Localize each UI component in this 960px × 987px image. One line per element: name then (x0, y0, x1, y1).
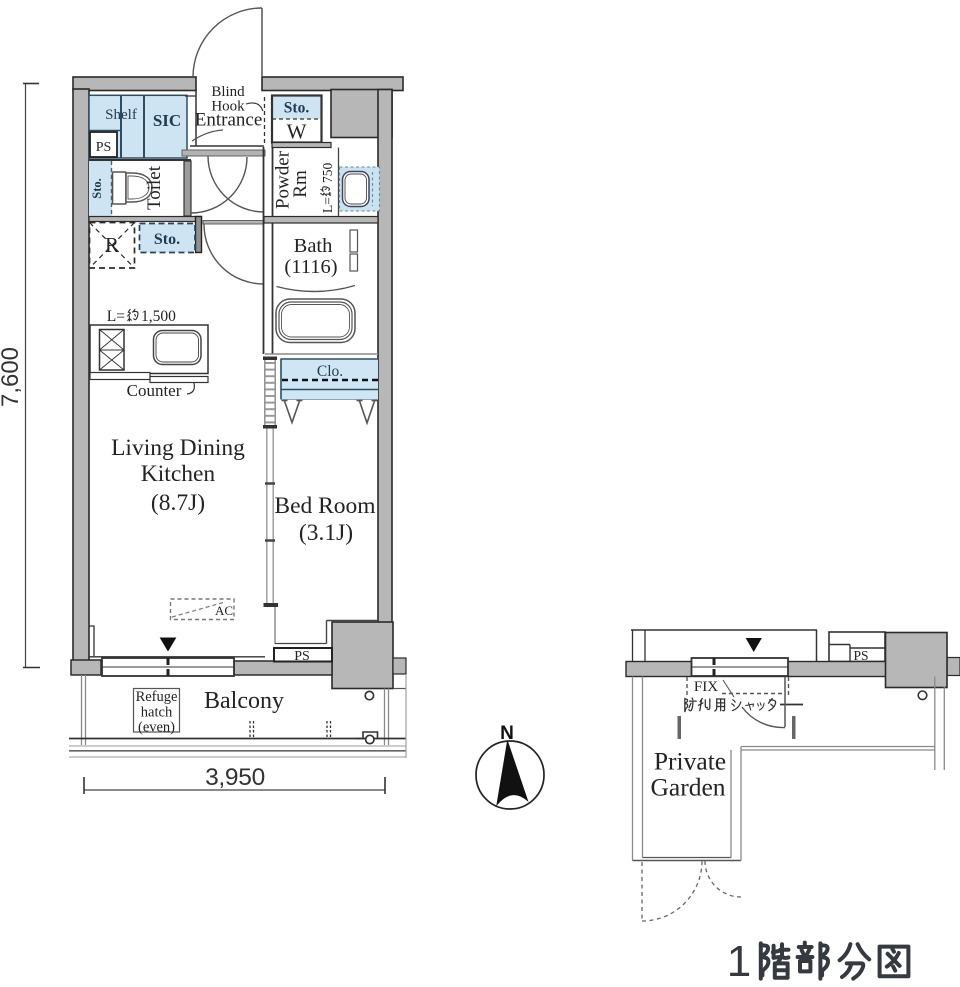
svg-text:Sto.: Sto. (90, 178, 104, 199)
svg-text:3,950: 3,950 (205, 764, 265, 791)
svg-text:750: 750 (320, 163, 335, 184)
svg-text:(1116): (1116) (284, 256, 337, 278)
svg-text:PS: PS (294, 649, 310, 664)
svg-text:Sto.: Sto. (154, 231, 180, 248)
svg-text:1,500: 1,500 (141, 308, 176, 325)
svg-text:W: W (287, 120, 307, 144)
svg-text:Bath: Bath (294, 235, 333, 257)
svg-text:Garden: Garden (650, 773, 725, 802)
svg-text:FIX: FIX (694, 679, 718, 695)
svg-text:Shelf: Shelf (105, 107, 137, 123)
svg-text:PS: PS (853, 648, 868, 663)
svg-text:Sto.: Sto. (284, 100, 310, 117)
svg-text:Refuge: Refuge (136, 689, 178, 705)
svg-text:Balcony: Balcony (204, 688, 284, 714)
svg-text:Bed Room: Bed Room (274, 493, 375, 519)
svg-text:hatch: hatch (141, 705, 173, 721)
svg-text:SIC: SIC (153, 111, 181, 130)
svg-text:7,600: 7,600 (0, 347, 24, 407)
svg-text:Kitchen: Kitchen (141, 461, 216, 487)
svg-text:L=: L= (107, 308, 125, 325)
svg-text:L=: L= (320, 197, 335, 213)
svg-text:Private: Private (654, 747, 726, 776)
svg-text:(even): (even) (138, 720, 175, 736)
svg-text:AC: AC (215, 603, 233, 618)
svg-text:Counter: Counter (127, 381, 182, 400)
svg-text:R: R (105, 233, 119, 257)
svg-text:N: N (500, 723, 514, 744)
svg-text:Rm: Rm (290, 170, 311, 198)
svg-text:(8.7J): (8.7J) (151, 490, 205, 516)
svg-text:Clo.: Clo. (317, 363, 343, 380)
svg-text:Living Dining: Living Dining (111, 435, 245, 461)
svg-text:PS: PS (96, 140, 112, 155)
svg-text:1: 1 (727, 937, 751, 986)
svg-text:Entrance: Entrance (195, 110, 263, 131)
svg-text:Toilet: Toilet (144, 165, 165, 210)
svg-text:(3.1J): (3.1J) (299, 520, 353, 546)
